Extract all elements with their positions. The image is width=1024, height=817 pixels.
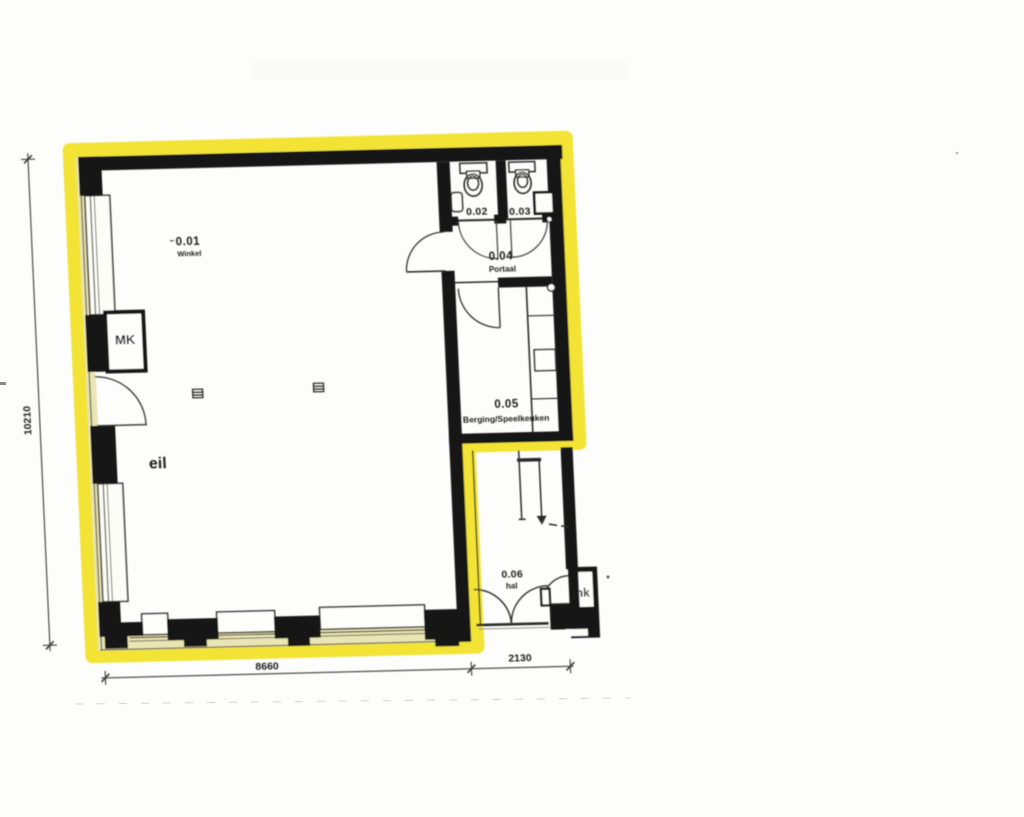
svg-text:2130: 2130 (508, 652, 532, 665)
svg-text:Winkel: Winkel (177, 249, 201, 259)
svg-text:MK: MK (115, 332, 136, 348)
svg-text:eil: eil (149, 455, 168, 472)
svg-text:0.03: 0.03 (509, 206, 531, 219)
svg-text:0.04: 0.04 (488, 250, 513, 263)
svg-text:0.05: 0.05 (494, 398, 519, 411)
svg-text:0.02: 0.02 (466, 206, 488, 219)
svg-text:10210: 10210 (21, 406, 34, 436)
svg-text:mk: mk (572, 586, 590, 600)
svg-text:Portaal: Portaal (489, 264, 517, 274)
svg-text:8660: 8660 (255, 661, 279, 674)
svg-text:0.01: 0.01 (175, 236, 200, 249)
svg-text:Berging/Speelkeuken: Berging/Speelkeuken (463, 413, 550, 425)
svg-text:0.06: 0.06 (501, 568, 523, 581)
svg-text:hal: hal (506, 582, 518, 591)
